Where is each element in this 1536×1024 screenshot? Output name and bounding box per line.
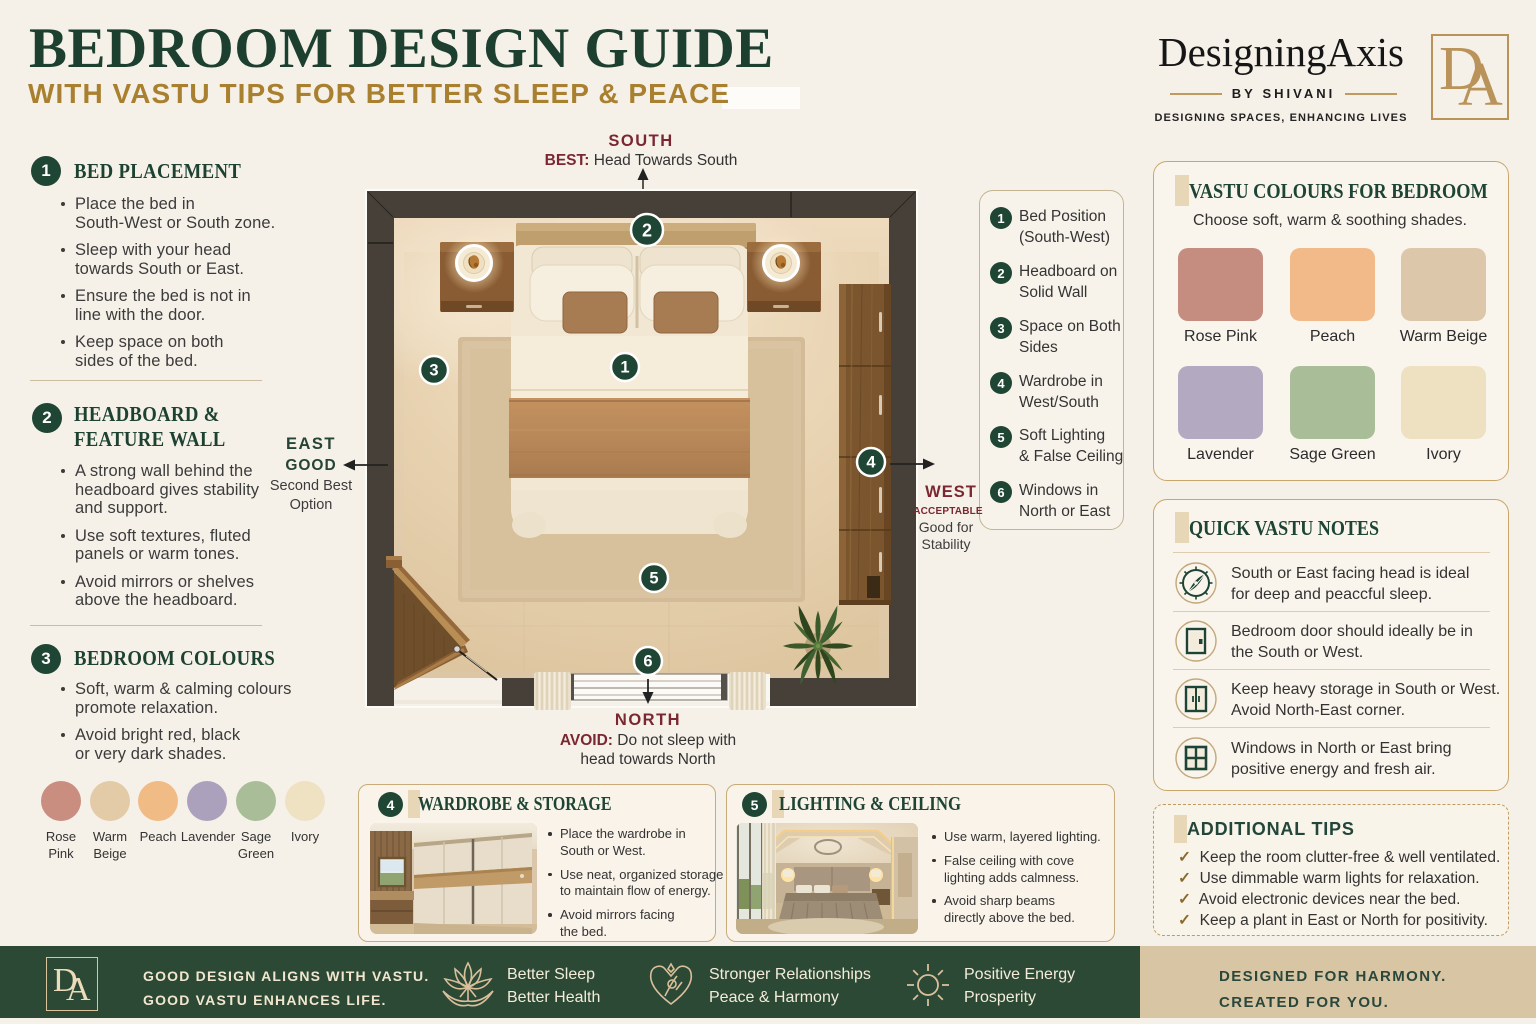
svg-text:6: 6 [643,653,652,671]
svg-text:Stability: Stability [921,536,970,552]
svg-text:head towards North: head towards North [580,751,715,768]
svg-text:1: 1 [620,359,629,377]
svg-text:WEST: WEST [925,483,977,501]
svg-text:BEST: Head Towards South: BEST: Head Towards South [545,152,738,169]
svg-text:AVOID: Do not sleep with: AVOID: Do not sleep with [560,732,736,749]
svg-text:EAST: EAST [286,435,336,453]
svg-text:5: 5 [649,570,658,588]
svg-text:ACCEPTABLE: ACCEPTABLE [913,506,983,517]
svg-text:Second Best: Second Best [270,478,352,494]
svg-text:GOOD: GOOD [285,457,336,474]
svg-text:NORTH: NORTH [615,711,681,729]
svg-text:3: 3 [429,362,438,380]
svg-text:SOUTH: SOUTH [608,132,673,150]
svg-text:4: 4 [866,454,876,472]
svg-text:Good for: Good for [919,519,974,535]
svg-text:Option: Option [290,497,333,513]
svg-text:2: 2 [642,221,652,241]
